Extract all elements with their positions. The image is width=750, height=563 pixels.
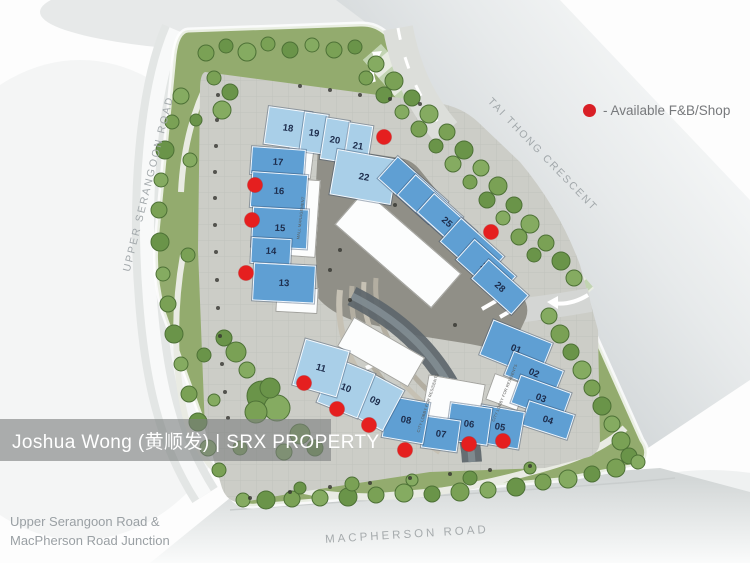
caption-line2: MacPherson Road Junction <box>10 531 170 550</box>
tree-icon <box>541 308 557 324</box>
tree-icon <box>160 296 176 312</box>
tree-icon <box>559 470 577 488</box>
tree-icon <box>607 459 625 477</box>
bollard-dot <box>348 298 352 302</box>
tree-icon <box>326 42 342 58</box>
bollard-dot <box>333 183 337 187</box>
tree-icon <box>395 484 413 502</box>
bollard-dot <box>328 88 332 92</box>
tree-icon <box>511 229 527 245</box>
bollard-dot <box>350 206 354 210</box>
bollard-dot <box>220 362 224 366</box>
bollard-dot <box>370 230 374 234</box>
tree-icon <box>551 325 569 343</box>
watermark-bar: Joshua Wong (黄顺发) | SRX PROPERTY <box>0 419 331 461</box>
tree-icon <box>538 235 554 251</box>
tree-icon <box>173 88 189 104</box>
tree-icon <box>479 192 495 208</box>
tree-icon <box>506 197 522 213</box>
tree-icon <box>563 344 579 360</box>
tree-icon <box>198 45 214 61</box>
bollard-dot <box>215 278 219 282</box>
tree-icon <box>455 141 473 159</box>
tree-icon <box>312 490 328 506</box>
tree-icon <box>631 455 645 469</box>
bollard-dot <box>216 93 220 97</box>
bollard-dot <box>388 97 392 101</box>
caption-line1: Upper Serangoon Road & <box>10 512 170 531</box>
tree-icon <box>604 416 620 432</box>
bollard-dot <box>298 84 302 88</box>
bollard-dot <box>218 334 222 338</box>
tree-icon <box>507 478 525 496</box>
tree-icon <box>573 361 591 379</box>
tree-icon <box>535 474 551 490</box>
bollard-dot <box>288 490 292 494</box>
bollard-dot <box>216 306 220 310</box>
bollard-dot <box>328 268 332 272</box>
bollard-dot <box>214 250 218 254</box>
site-plan-image: 1819202122171615141323242526272801020304… <box>0 0 750 563</box>
bollard-dot <box>488 468 492 472</box>
tree-icon <box>305 38 319 52</box>
tree-icon <box>527 248 541 262</box>
tree-icon <box>345 477 359 491</box>
tree-icon <box>261 37 275 51</box>
tree-icon <box>156 141 174 159</box>
tree-icon <box>552 252 570 270</box>
tree-icon <box>257 491 275 509</box>
tree-icon <box>496 211 510 225</box>
tree-icon <box>207 71 221 85</box>
tree-icon <box>165 115 179 129</box>
tree-icon <box>404 90 420 106</box>
bollard-dot <box>214 144 218 148</box>
bollard-dot <box>215 118 219 122</box>
bollard-dot <box>328 485 332 489</box>
tree-icon <box>260 378 280 398</box>
tree-icon <box>463 175 477 189</box>
tree-icon <box>239 362 255 378</box>
tree-icon <box>612 432 630 450</box>
junction-caption: Upper Serangoon Road & MacPherson Road J… <box>10 512 170 550</box>
tree-icon <box>368 56 384 72</box>
bollard-dot <box>408 476 412 480</box>
tree-icon <box>385 72 403 90</box>
tree-icon <box>181 248 195 262</box>
tree-icon <box>151 233 169 251</box>
tree-icon <box>174 357 188 371</box>
watermark-text: Joshua Wong (黄顺发) | SRX PROPERTY <box>12 427 380 454</box>
bollard-dot <box>248 496 252 500</box>
tree-icon <box>566 270 582 286</box>
tree-icon <box>213 101 231 119</box>
bollard-dot <box>358 93 362 97</box>
tree-icon <box>226 342 246 362</box>
bollard-dot <box>338 248 342 252</box>
tree-icon <box>411 121 427 137</box>
tree-icon <box>222 84 238 100</box>
tree-icon <box>424 486 440 502</box>
tree-icon <box>584 380 600 396</box>
tree-icon <box>216 330 232 346</box>
tree-icon <box>294 482 306 494</box>
tree-icon <box>463 471 477 485</box>
site-plan-graphic <box>0 0 750 563</box>
tree-icon <box>190 114 202 126</box>
tree-icon <box>282 42 298 58</box>
tree-icon <box>208 394 220 406</box>
tree-icon <box>395 105 409 119</box>
tree-icon <box>429 139 443 153</box>
bollard-dot <box>213 223 217 227</box>
tree-icon <box>197 348 211 362</box>
tree-icon <box>489 177 507 195</box>
bollard-dot <box>213 170 217 174</box>
tree-icon <box>480 482 496 498</box>
tree-icon <box>165 325 183 343</box>
bollard-dot <box>418 102 422 106</box>
bollard-dot <box>368 481 372 485</box>
bollard-dot <box>223 390 227 394</box>
tree-icon <box>151 202 167 218</box>
bollard-dot <box>453 323 457 327</box>
tree-icon <box>348 40 362 54</box>
bollard-dot <box>528 464 532 468</box>
tree-icon <box>181 386 197 402</box>
tree-icon <box>238 43 256 61</box>
tree-icon <box>368 487 384 503</box>
bollard-dot <box>213 196 217 200</box>
tree-icon <box>406 474 418 486</box>
tree-icon <box>445 156 461 172</box>
bollard-dot <box>448 472 452 476</box>
tree-icon <box>236 493 250 507</box>
tree-icon <box>212 463 226 477</box>
tree-icon <box>154 173 168 187</box>
tree-icon <box>473 160 489 176</box>
tree-icon <box>264 395 290 421</box>
tree-icon <box>439 124 455 140</box>
tree-icon <box>420 105 438 123</box>
tree-icon <box>156 267 170 281</box>
tree-icon <box>451 483 469 501</box>
tree-icon <box>219 39 233 53</box>
tree-icon <box>183 153 197 167</box>
tree-icon <box>584 466 600 482</box>
bollard-dot <box>393 203 397 207</box>
bollard-dot <box>428 298 432 302</box>
tree-icon <box>359 71 373 85</box>
tree-icon <box>593 397 611 415</box>
